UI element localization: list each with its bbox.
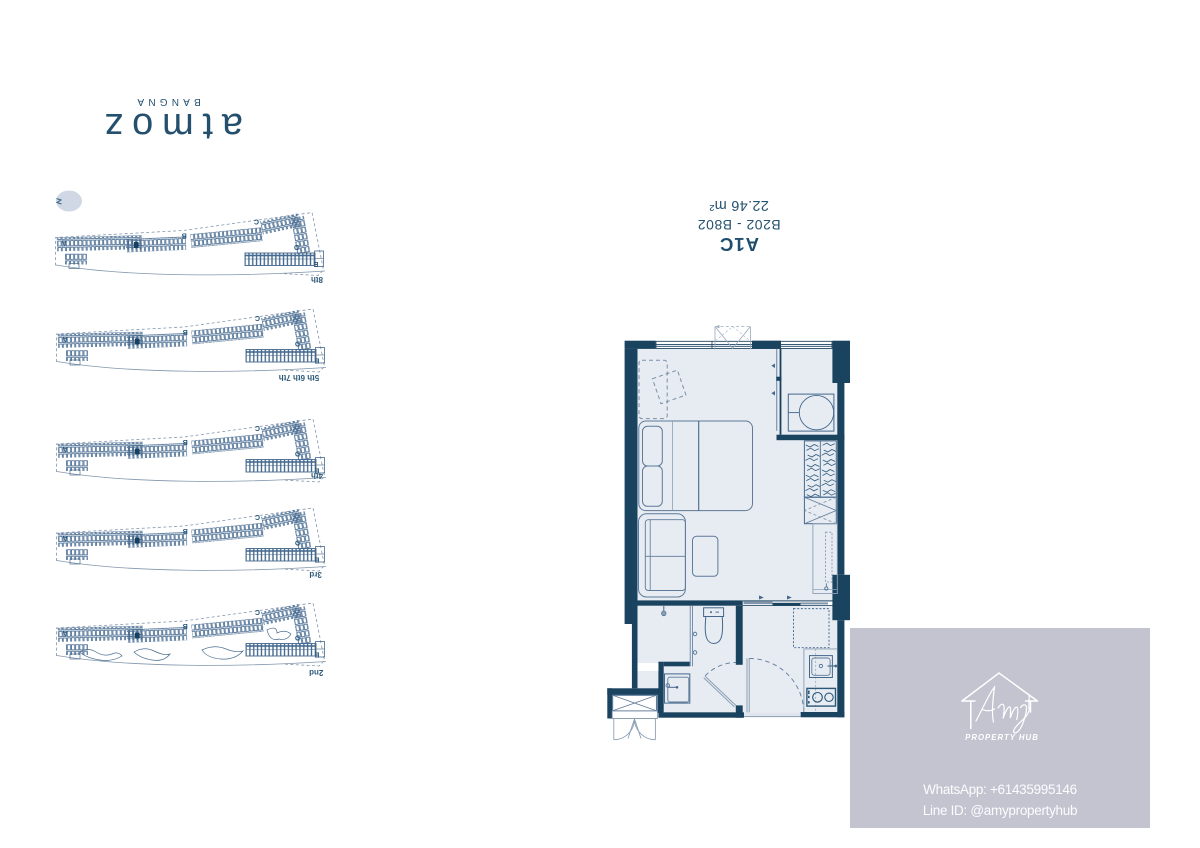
svg-text:2nd: 2nd: [309, 668, 323, 677]
svg-text:4th: 4th: [311, 471, 323, 480]
svg-text:8th: 8th: [311, 275, 323, 284]
svg-text:5th 6th 7th: 5th 6th 7th: [279, 373, 320, 382]
svg-text:PROPERTY HUB: PROPERTY HUB: [965, 733, 1039, 742]
svg-text:3rd: 3rd: [309, 570, 322, 579]
